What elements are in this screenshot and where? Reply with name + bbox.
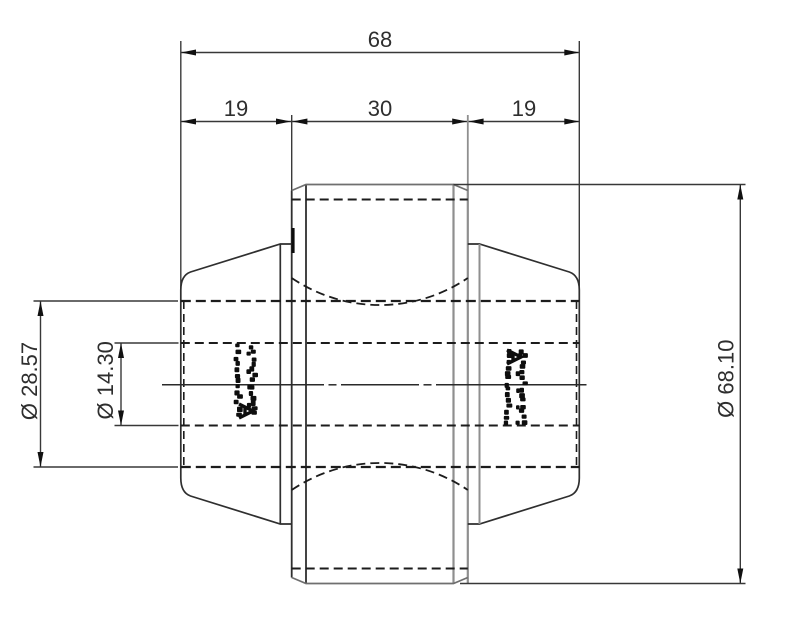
svg-text:30: 30	[368, 96, 392, 121]
svg-text:19: 19	[512, 96, 536, 121]
svg-text:Ø 14.30: Ø 14.30	[93, 341, 118, 419]
svg-text:Ø 28.57: Ø 28.57	[17, 342, 42, 420]
svg-text:Ø 68.10: Ø 68.10	[713, 340, 738, 418]
svg-text:68: 68	[368, 27, 392, 52]
svg-text:19: 19	[224, 96, 248, 121]
